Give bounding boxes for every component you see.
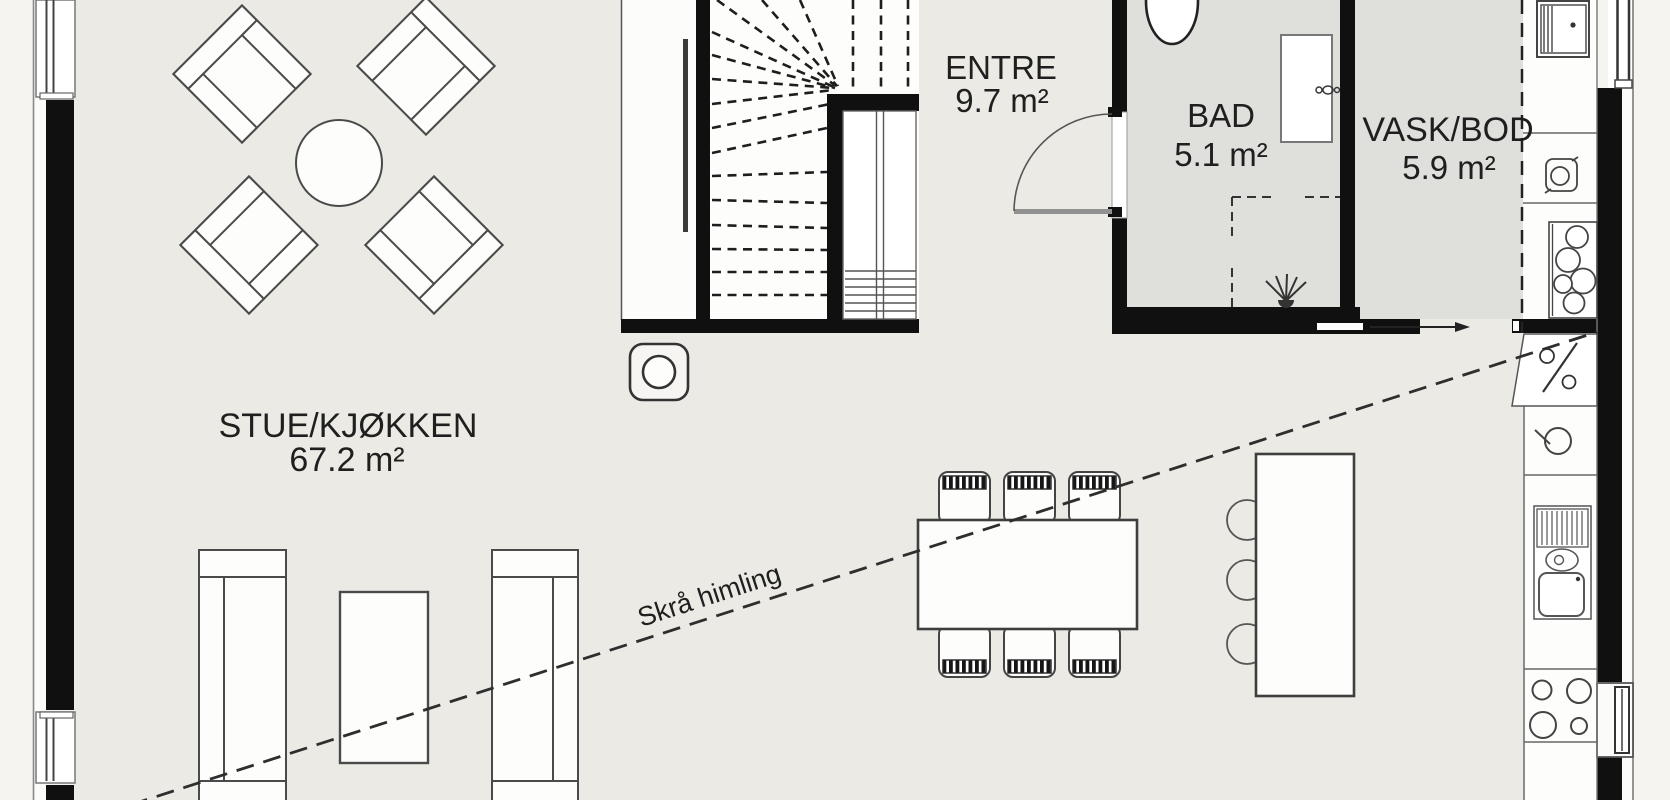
svg-text:5.1 m²: 5.1 m² xyxy=(1174,136,1268,173)
svg-text:VASK/BOD: VASK/BOD xyxy=(1362,111,1533,149)
svg-text:9.7 m²: 9.7 m² xyxy=(955,82,1049,119)
svg-text:5.9 m²: 5.9 m² xyxy=(1402,149,1496,186)
svg-text:ENTRE: ENTRE xyxy=(945,49,1057,86)
svg-text:BAD: BAD xyxy=(1187,97,1255,134)
svg-text:STUE/KJØKKEN: STUE/KJØKKEN xyxy=(219,407,478,445)
svg-text:67.2 m²: 67.2 m² xyxy=(289,441,404,479)
